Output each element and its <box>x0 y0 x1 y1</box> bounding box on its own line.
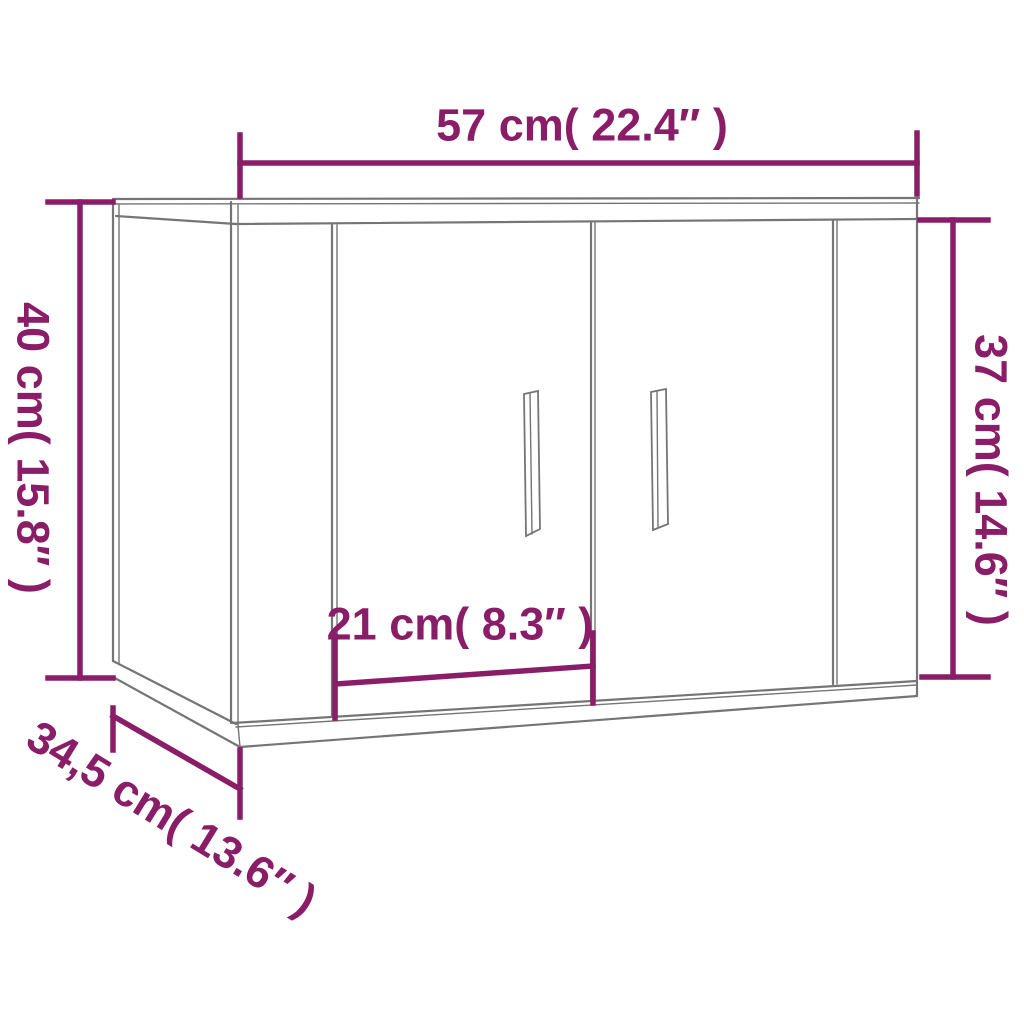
dimension-label-right-height: 37 cm( 14.6″ ) <box>969 334 1014 626</box>
dimension-label-left-height: 40 cm( 15.8″ ) <box>11 302 56 594</box>
dimension-lines <box>48 133 988 817</box>
dimension-label-top-width: 57 cm( 22.4″ ) <box>436 103 728 148</box>
left-door-handle <box>524 391 540 536</box>
cabinet-line-drawing <box>0 0 1024 1024</box>
right-door <box>833 220 837 684</box>
door-handles <box>524 389 668 536</box>
left-side-panel <box>113 199 240 747</box>
dimension-label-door-width: 21 cm( 8.3″ ) <box>327 602 594 647</box>
cabinet-outline <box>113 198 919 747</box>
dimension-diagram: 57 cm( 22.4″ ) 40 cm( 15.8″ ) 37 cm( 14.… <box>0 0 1024 1024</box>
cabinet-top-edge <box>113 198 919 224</box>
right-door-handle <box>651 389 668 530</box>
